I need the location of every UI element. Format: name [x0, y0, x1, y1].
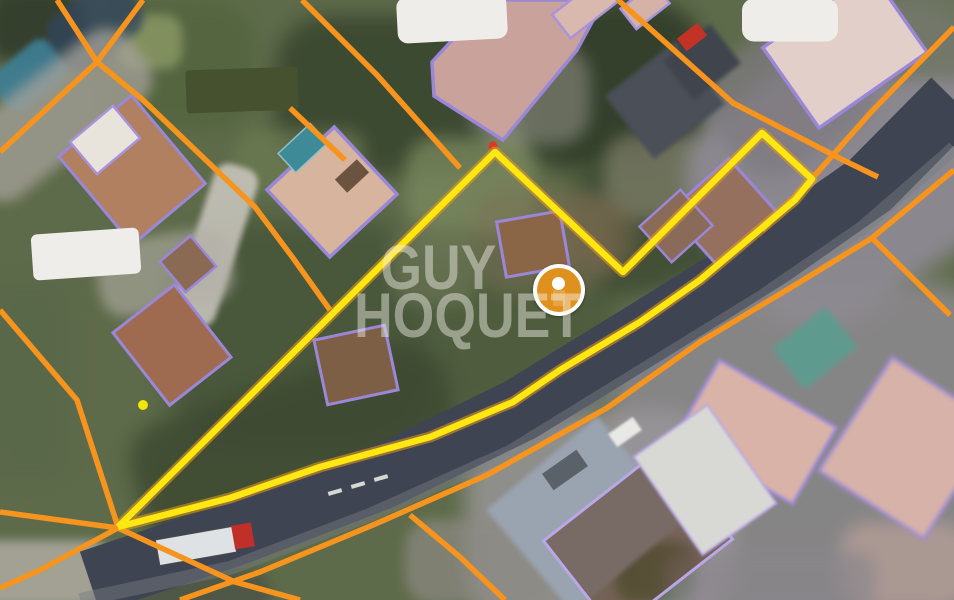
terrain-patch	[0, 275, 75, 485]
redaction-box-green	[185, 67, 298, 114]
vehicle	[231, 522, 255, 549]
aerial-map[interactable]: GUY HOQUET	[0, 0, 954, 600]
redaction-box-white	[31, 227, 142, 280]
redaction-box-white	[396, 0, 508, 44]
redaction-box-white	[742, 0, 838, 42]
boundary-point-mark	[138, 400, 148, 410]
watermark: GUY HOQUET	[354, 244, 583, 340]
watermark-line-2: HOQUET	[354, 292, 583, 340]
